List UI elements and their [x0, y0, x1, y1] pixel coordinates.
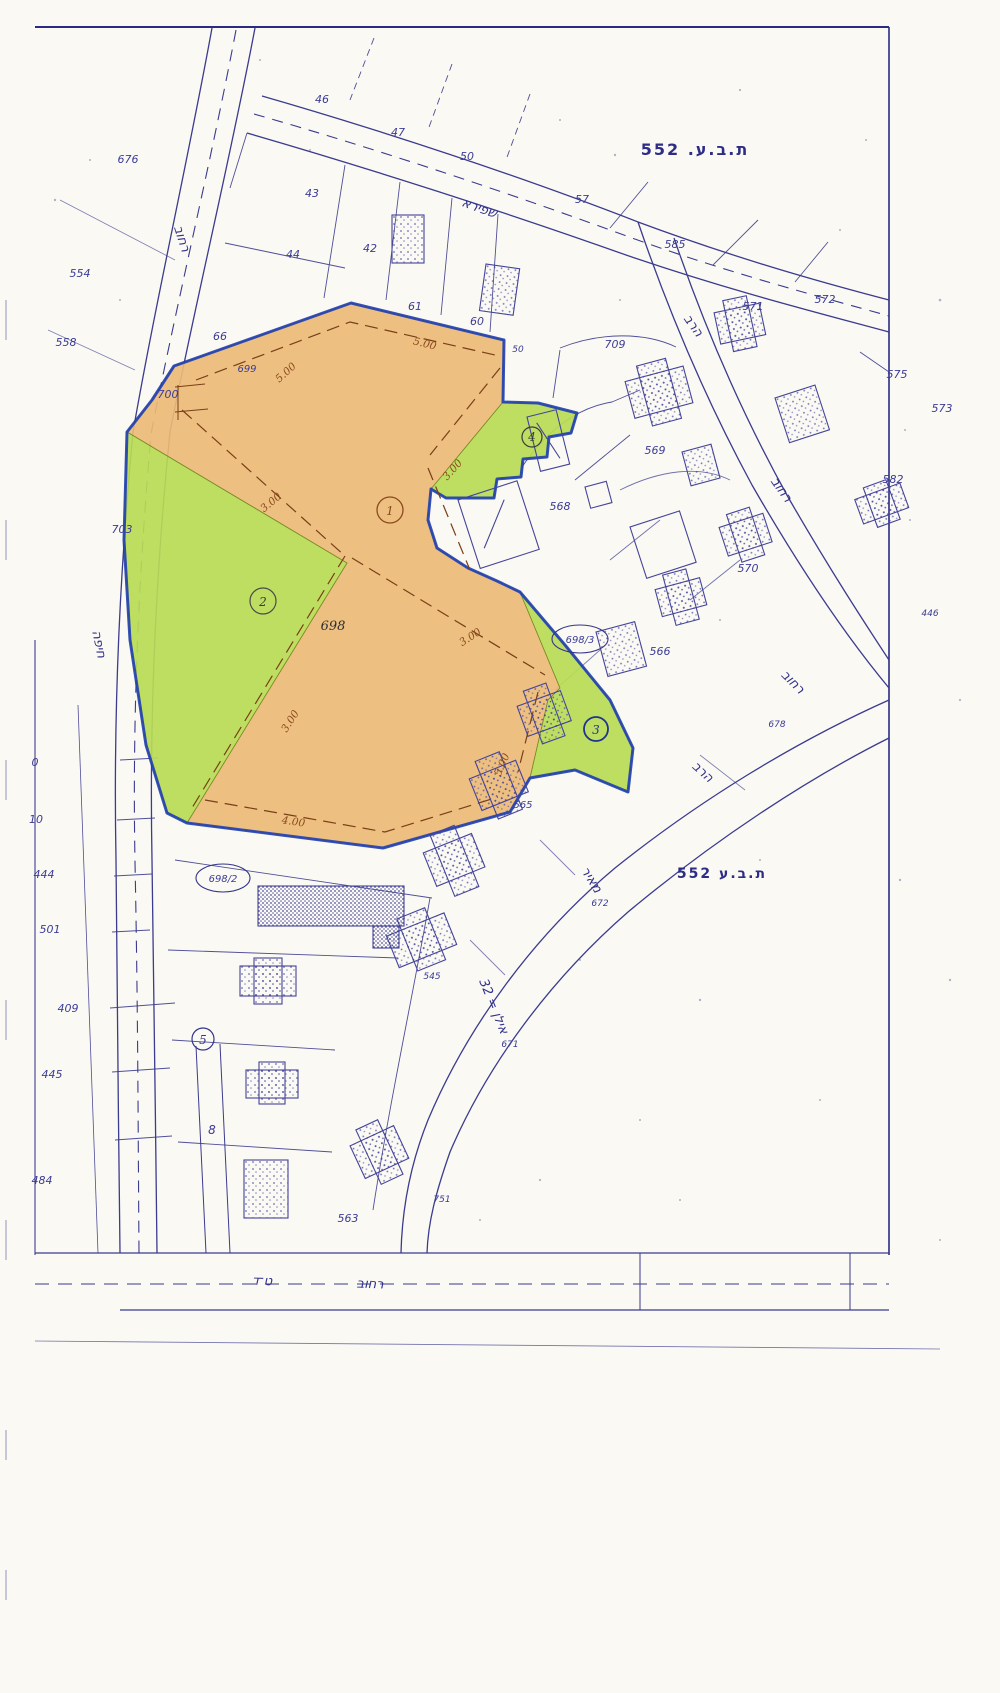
svg-text:2: 2 — [258, 595, 267, 609]
parcel-number: 575 — [887, 368, 908, 381]
street-label-rehov-roadB: רחוב — [778, 668, 808, 698]
svg-text:3: 3 — [592, 723, 600, 737]
street-label-meir: מאיר — [577, 864, 605, 896]
parcel-number: 446 — [921, 609, 938, 619]
parcel-number: 545 — [423, 972, 440, 982]
street-label-harav-upper: הרב — [680, 312, 706, 340]
street-label-shapira: שפירא — [460, 195, 501, 222]
parcel-number: 61 — [408, 300, 422, 313]
parcel-number: 699 — [237, 364, 256, 375]
parcel-number: 445 — [42, 1068, 63, 1081]
parcel-number: 585 — [665, 238, 686, 251]
plan-title-top: ת.ב.ע. 255 — [641, 140, 750, 159]
parcel-number: 565 — [513, 800, 532, 811]
parcel-number: 568 — [550, 500, 571, 513]
parcel-number: 42 — [363, 242, 377, 255]
street-label-rehov-bottom: רחוב — [356, 1277, 383, 1293]
parcel-number: 50 — [460, 150, 474, 163]
parcel-number: 700 — [158, 388, 179, 401]
parcel-number: 409 — [58, 1002, 79, 1015]
street-label-bottom-name: ט־ד — [252, 1274, 273, 1290]
parcel-number: 570 — [738, 562, 759, 575]
block-number-698: 698 — [321, 619, 346, 634]
parcel-number: 484 — [32, 1174, 53, 1187]
parcel-number: 44 — [286, 248, 300, 261]
zone-mark-5: 5 — [192, 1028, 214, 1050]
parcel-number: 0 — [32, 756, 39, 769]
parcel-number: 10 — [29, 813, 43, 826]
parcel-number: 573 — [932, 402, 953, 415]
parcel-number: 57 — [575, 193, 589, 206]
parcel-number: 558 — [56, 336, 77, 349]
street-label-rehov-left: רחוב — [170, 224, 193, 254]
parcel-number: 50 — [512, 345, 524, 355]
scanned-plan-page: רחוב שפירא הרב רחוב רחוב הרב חיפה מאיר א… — [0, 0, 1000, 1693]
parcel-number: 571 — [743, 300, 764, 313]
parcel-number: 572 — [815, 293, 836, 306]
parcel-number: 47 — [391, 126, 405, 139]
parcel-number: 8 — [208, 1123, 216, 1137]
block-number-698-2: 698/2 — [196, 864, 250, 892]
parcel-number: 672 — [591, 899, 608, 909]
svg-text:5: 5 — [199, 1033, 207, 1047]
svg-text:698/2: 698/2 — [209, 874, 238, 885]
parcel-number: 563 — [338, 1212, 359, 1225]
parcel-number: 444 — [34, 868, 55, 881]
plan-title-mid: ת.ב.ע 255 — [677, 866, 767, 882]
street-label-haifa: חיפה — [88, 629, 109, 660]
parcel-number: 676 — [118, 153, 139, 166]
parcel-number: 46 — [315, 93, 329, 106]
svg-text:1: 1 — [386, 504, 394, 518]
street-label-harav-lower: הרב — [689, 759, 717, 786]
parcel-number: 709 — [605, 338, 626, 351]
street-label-ilan-23: אילן = 23 — [475, 977, 511, 1037]
parcel-number: 703 — [112, 523, 133, 536]
parcel-number: 566 — [650, 645, 671, 658]
parcel-number: 678 — [768, 720, 785, 730]
parcel-number: 60 — [470, 315, 484, 328]
svg-text:4: 4 — [527, 430, 536, 444]
parcel-number: 43 — [305, 187, 319, 200]
parcel-number: 671 — [501, 1040, 518, 1050]
parcel-number: 569 — [645, 444, 666, 457]
parcel-number: 751 — [433, 1195, 450, 1205]
parcel-number: 66 — [213, 330, 227, 343]
parcel-number: 501 — [40, 923, 61, 936]
zoning-map-canvas: רחוב שפירא הרב רחוב רחוב הרב חיפה מאיר א… — [0, 0, 1000, 1693]
parcel-number: 554 — [70, 267, 91, 280]
svg-text:698/3: 698/3 — [566, 635, 595, 646]
parcel-number: 582 — [883, 473, 904, 486]
